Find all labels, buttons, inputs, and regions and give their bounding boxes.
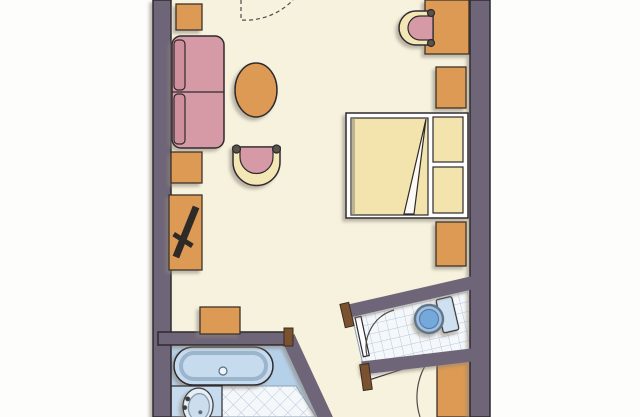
mattress-shade <box>351 118 355 215</box>
coffee-table <box>235 63 277 117</box>
bathtub-drain <box>219 367 227 375</box>
pillow <box>433 167 463 213</box>
double-bed <box>346 113 468 218</box>
tv-sideboard <box>169 195 202 270</box>
side-table <box>171 152 202 183</box>
door-jamb <box>284 328 293 346</box>
sofa-cushion <box>174 94 185 144</box>
nightstand <box>436 222 466 266</box>
side-table <box>176 4 202 30</box>
pillow <box>433 117 463 162</box>
armchair <box>233 145 281 185</box>
desk-chair-knob <box>428 10 435 17</box>
desk-chair-knob <box>428 40 435 47</box>
floor-plan-drawing <box>0 0 640 417</box>
sofa-cushion <box>174 40 185 90</box>
bathtub <box>174 347 273 385</box>
washbasin-unit <box>171 386 222 417</box>
left-wall <box>153 0 171 417</box>
armchair-knob <box>233 145 241 153</box>
nightstand <box>436 67 466 108</box>
sofa <box>172 36 224 148</box>
armchair-knob <box>273 145 281 153</box>
desk-chair-seat <box>408 16 433 40</box>
desk-chair <box>399 10 434 47</box>
floor-plan-page <box>0 0 640 417</box>
luggage-stool <box>200 307 240 334</box>
armchair-seat <box>240 147 273 174</box>
